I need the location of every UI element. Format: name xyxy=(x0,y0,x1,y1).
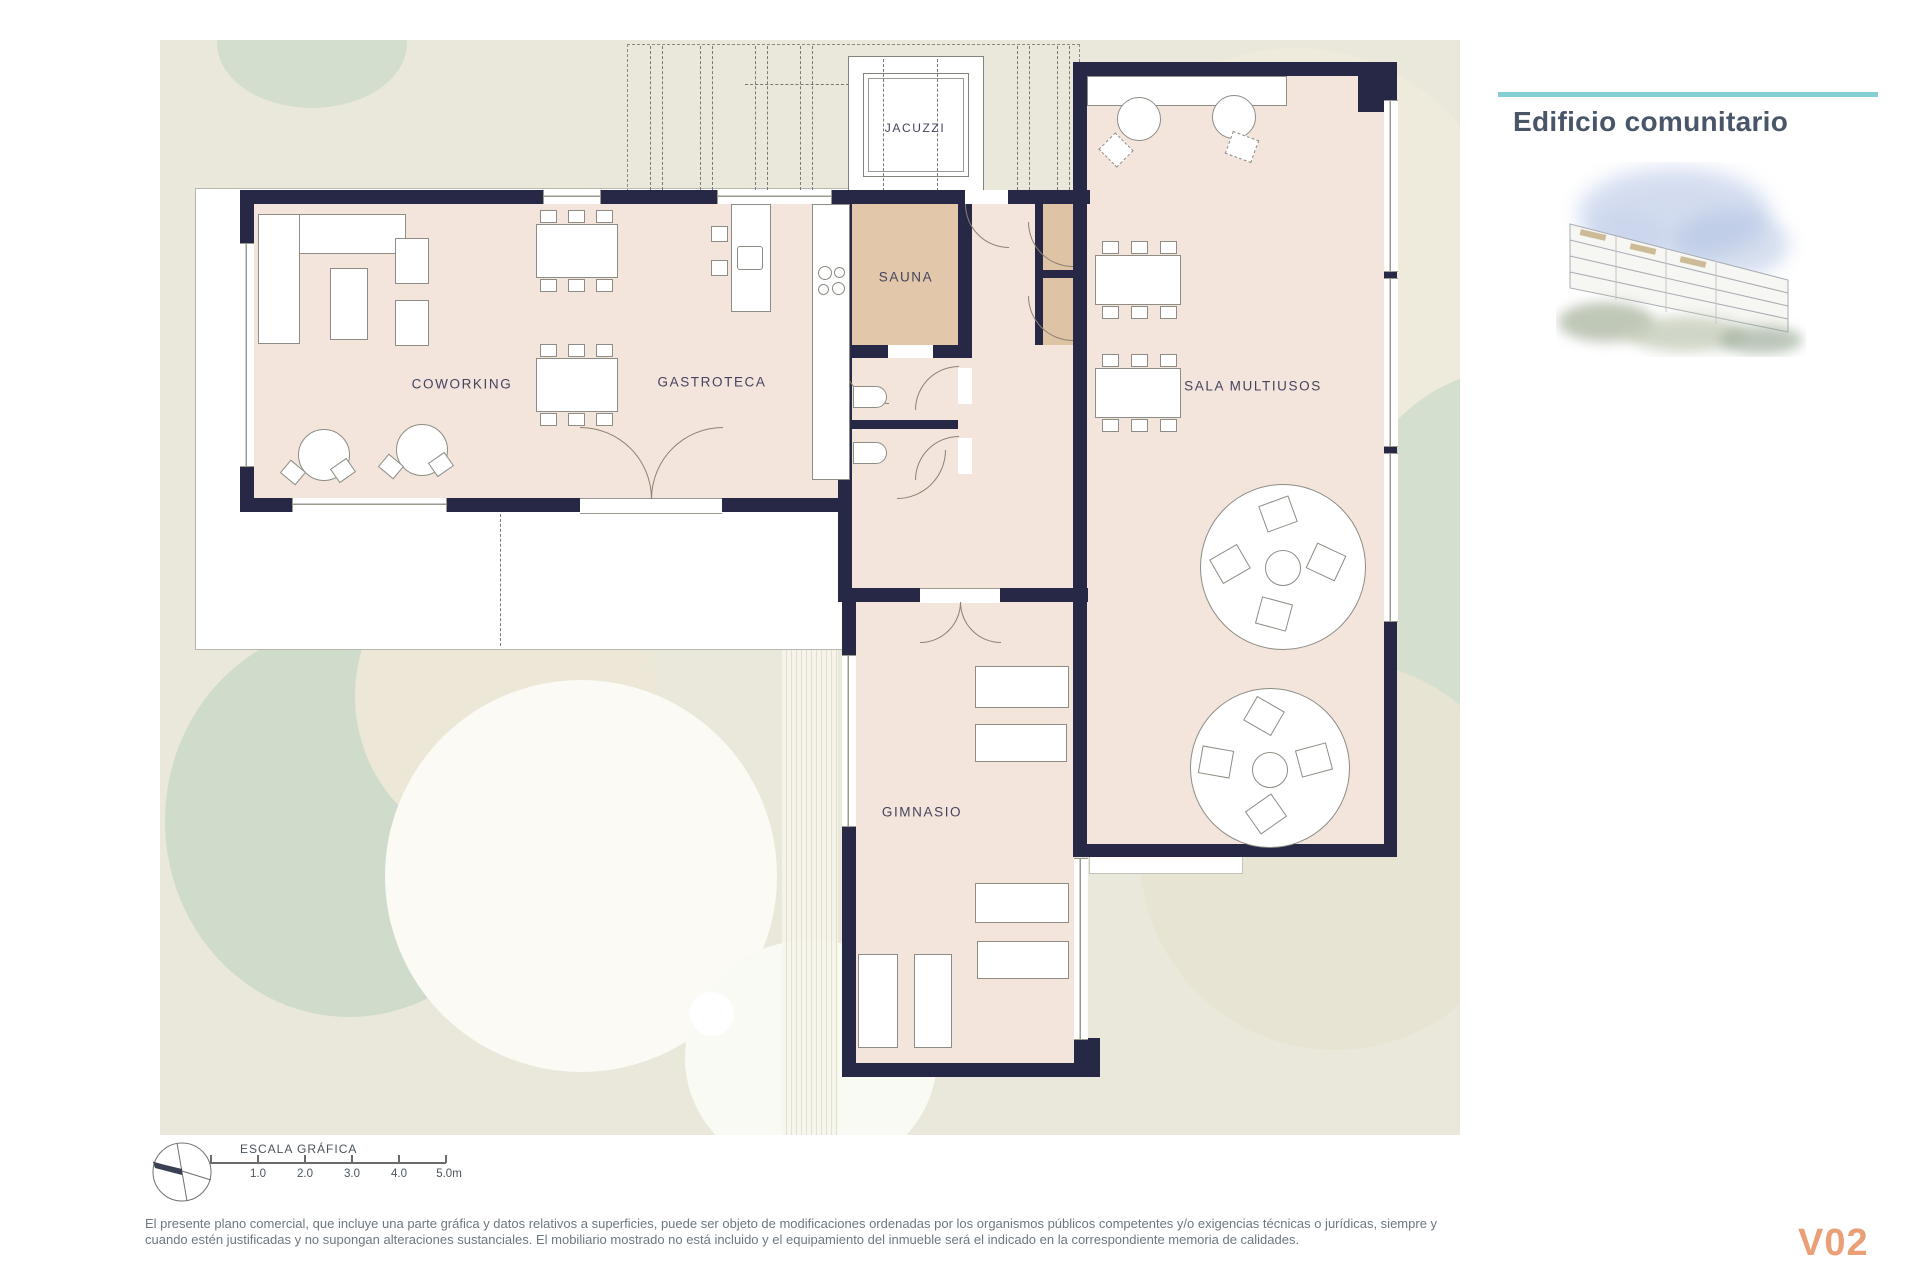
door-opening xyxy=(965,190,1008,204)
chair xyxy=(540,344,557,357)
room-label-coworking: COWORKING xyxy=(412,377,513,392)
door-opening xyxy=(958,438,972,474)
scale-bar-tick xyxy=(398,1155,400,1163)
chair xyxy=(1102,419,1119,432)
scale-tick-label: 5.0m xyxy=(436,1168,462,1180)
chair xyxy=(540,279,557,292)
chair xyxy=(1160,419,1177,432)
door-opening xyxy=(888,345,933,358)
chair xyxy=(568,210,585,223)
gym-machine xyxy=(975,883,1069,923)
terrace-joint-line xyxy=(500,514,501,646)
scale-bar-tick xyxy=(257,1155,259,1163)
pergola-beam xyxy=(650,46,651,190)
window xyxy=(1384,278,1398,447)
wall-segment xyxy=(1078,844,1397,857)
threshold-strip xyxy=(1090,857,1242,873)
chair xyxy=(1102,241,1119,254)
pergola-beam xyxy=(745,84,849,85)
scale-tick-label: 1.0 xyxy=(250,1168,266,1180)
legal-disclaimer-line1: El presente plano comercial, que incluye… xyxy=(145,1216,1437,1231)
scale-bar-tick xyxy=(304,1155,306,1163)
kitchen-counter xyxy=(812,204,850,480)
scale-bar-tick xyxy=(351,1155,353,1163)
armchair xyxy=(395,238,429,284)
scale-tick-label: 4.0 xyxy=(391,1168,407,1180)
coffee-table xyxy=(330,268,368,340)
armchair xyxy=(395,300,429,346)
scale-tick-label: 2.0 xyxy=(297,1168,313,1180)
wall-segment xyxy=(958,204,972,357)
building-watercolor-illustration xyxy=(1556,162,1806,357)
pergola-beam xyxy=(800,46,801,190)
pergola-beam xyxy=(755,46,756,190)
gym-mat xyxy=(914,954,952,1048)
room-label-sala-multiusos: SALA MULTIUSOS xyxy=(1184,379,1322,394)
pergola-beam xyxy=(812,46,813,190)
scale-bar-tick xyxy=(210,1155,212,1163)
scale-bar-title: ESCALA GRÁFICA xyxy=(240,1142,357,1156)
chair xyxy=(540,413,557,426)
wall-segment xyxy=(842,1063,1088,1077)
window xyxy=(717,190,832,204)
scale-bar-line xyxy=(210,1162,446,1164)
sideboard xyxy=(1087,76,1287,106)
chair xyxy=(1102,354,1119,367)
window xyxy=(292,498,447,512)
cooktop-burner xyxy=(818,266,832,280)
window xyxy=(1384,100,1398,272)
table xyxy=(536,358,618,412)
table-center xyxy=(1265,550,1301,586)
tree-canopy xyxy=(217,40,407,108)
pergola-beam xyxy=(1029,46,1030,190)
plan-version-badge: V02 xyxy=(1798,1222,1869,1265)
chair xyxy=(596,279,613,292)
sofa xyxy=(258,214,300,344)
chair xyxy=(568,413,585,426)
gym-machine xyxy=(977,941,1069,979)
cooktop-burner xyxy=(834,267,845,278)
chair xyxy=(1131,354,1148,367)
pergola-beam xyxy=(1017,46,1018,190)
chair xyxy=(596,210,613,223)
chair xyxy=(568,344,585,357)
legal-disclaimer: El presente plano comercial, que incluye… xyxy=(145,1216,1550,1248)
chair xyxy=(568,279,585,292)
wall-segment xyxy=(1074,1038,1100,1077)
garden-path xyxy=(782,648,838,1135)
chair xyxy=(596,413,613,426)
wall-segment xyxy=(838,420,958,429)
stool xyxy=(711,260,728,276)
gym-machine xyxy=(975,666,1069,708)
pergola-beam xyxy=(662,46,663,190)
table xyxy=(1095,255,1181,305)
lounge-chair xyxy=(1117,97,1161,141)
pergola-beam xyxy=(1069,46,1070,190)
window xyxy=(1074,858,1088,1040)
room-label-gimnasio: GIMNASIO xyxy=(882,805,962,820)
wall-segment xyxy=(1035,270,1073,278)
window xyxy=(1384,453,1398,622)
compass-north-icon xyxy=(150,1140,214,1204)
legal-disclaimer-line2: cuando estén justificadas y no supongan … xyxy=(145,1232,1299,1247)
table xyxy=(536,224,618,278)
wall-segment xyxy=(838,190,1090,204)
sink xyxy=(737,246,763,270)
accent-divider-line xyxy=(1498,92,1878,97)
room-label-jacuzzi: JACUZZI xyxy=(885,121,946,135)
chair xyxy=(1131,241,1148,254)
chair xyxy=(1160,306,1177,319)
toilet xyxy=(853,386,887,408)
table xyxy=(1095,368,1181,418)
door-opening xyxy=(580,498,722,514)
door-opening xyxy=(958,368,972,404)
floor-plan-sheet: JACUZZI xyxy=(0,0,1920,1280)
wall-segment xyxy=(1078,62,1375,76)
chair xyxy=(1198,745,1234,778)
chair xyxy=(1160,241,1177,254)
pergola-beam xyxy=(767,46,768,190)
scale-tick-label: 3.0 xyxy=(344,1168,360,1180)
pergola-beam xyxy=(712,46,713,190)
wall-segment xyxy=(1073,62,1087,857)
scale-bar-tick xyxy=(445,1155,447,1163)
chair xyxy=(1160,354,1177,367)
chair xyxy=(596,344,613,357)
pergola-beam xyxy=(700,46,701,190)
door-opening xyxy=(920,588,1000,603)
cooktop-burner xyxy=(818,284,829,295)
table-center xyxy=(1252,752,1288,788)
room-label-sauna: SAUNA xyxy=(879,270,934,285)
chair xyxy=(1131,306,1148,319)
window xyxy=(842,655,856,827)
stool xyxy=(711,226,728,242)
window xyxy=(543,190,601,204)
gym-machine xyxy=(975,724,1067,762)
window xyxy=(240,243,254,467)
page-title: Edificio comunitario xyxy=(1513,106,1788,138)
cooktop-burner xyxy=(832,282,845,295)
chair xyxy=(540,210,557,223)
gym-mat xyxy=(858,954,898,1048)
chair xyxy=(1131,419,1148,432)
chair xyxy=(1102,306,1119,319)
toilet xyxy=(853,442,887,464)
room-label-gastroteca: GASTROTECA xyxy=(657,375,766,390)
tree-canopy xyxy=(690,992,734,1036)
pergola-beam xyxy=(1057,46,1058,190)
